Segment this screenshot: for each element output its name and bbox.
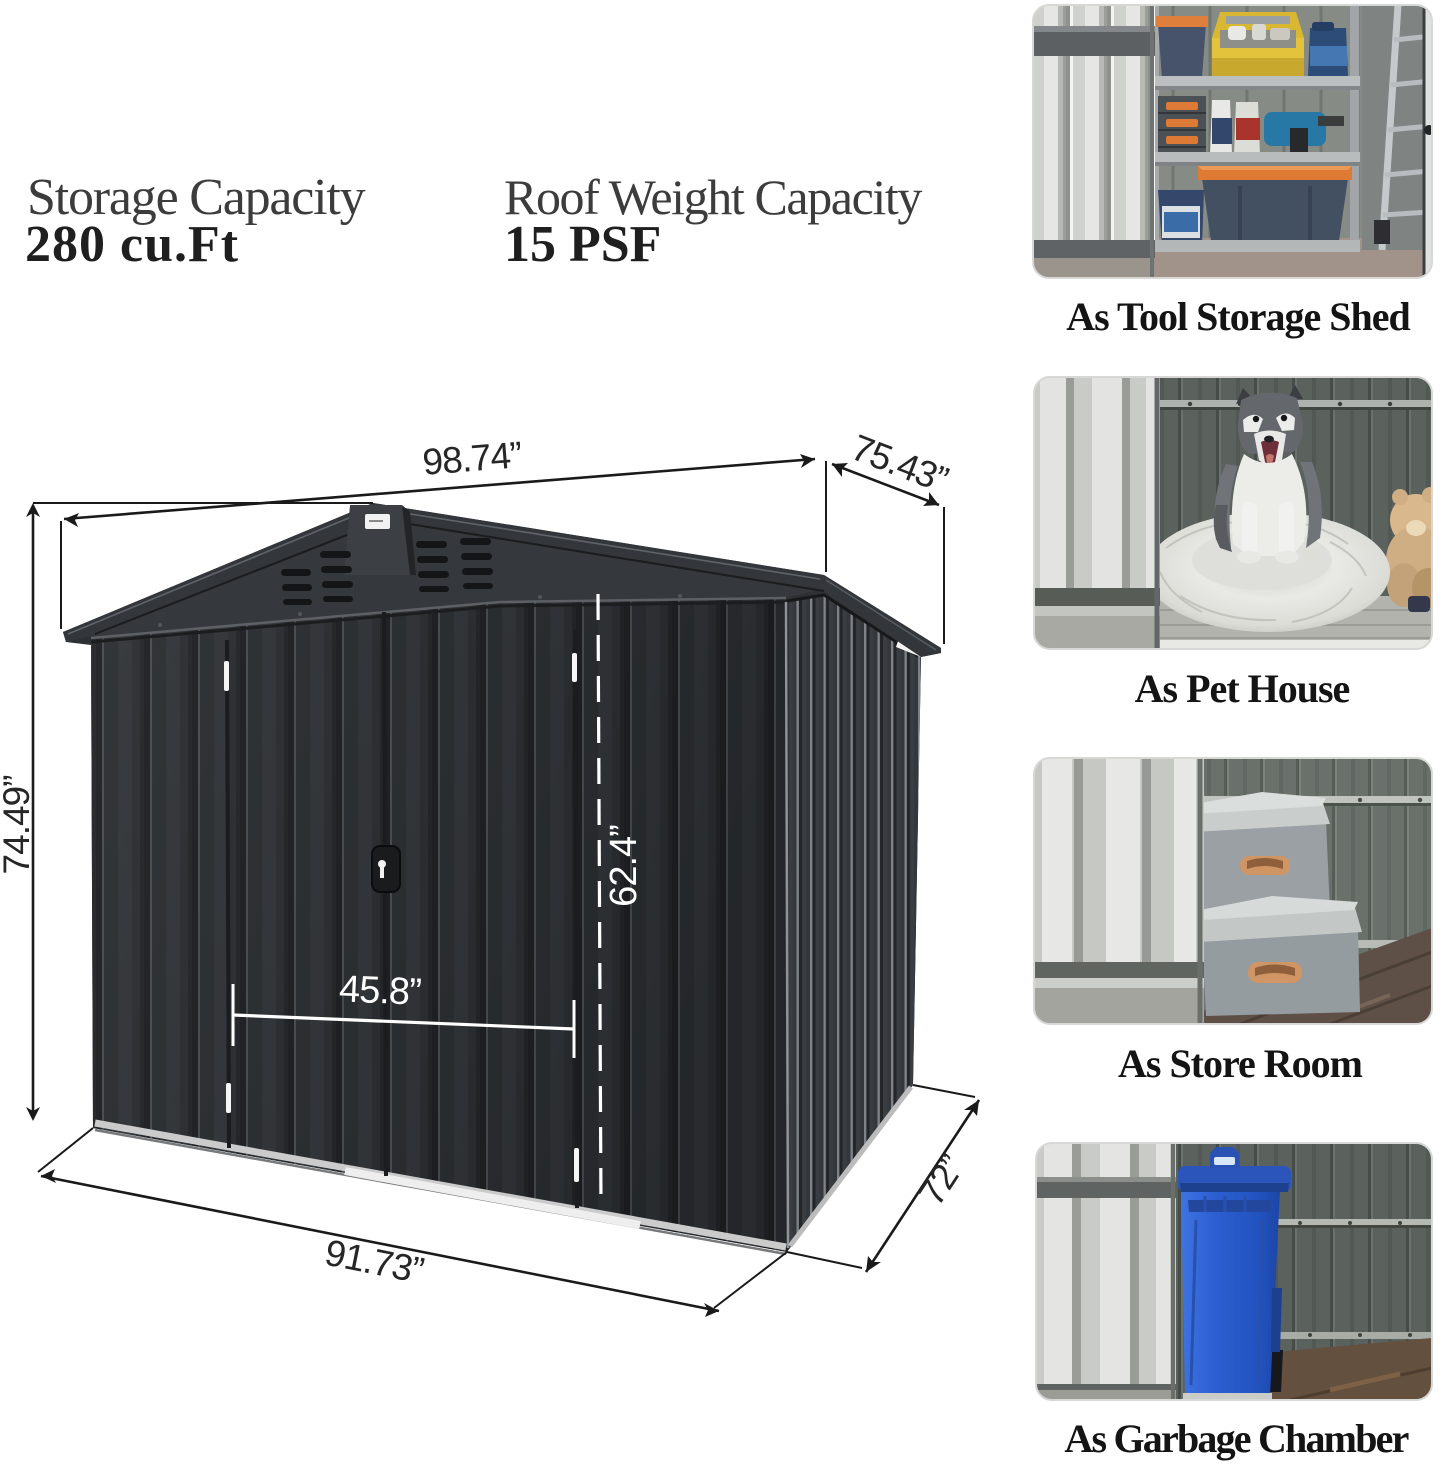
svg-text:98.74”: 98.74”	[421, 434, 523, 483]
svg-text:62.4”: 62.4”	[603, 825, 645, 907]
svg-text:91.73”: 91.73”	[322, 1232, 427, 1292]
svg-text:As Pet House: As Pet House	[1135, 666, 1350, 711]
svg-text:15 PSF: 15 PSF	[504, 216, 661, 273]
svg-text:As Tool Storage Shed: As Tool Storage Shed	[1066, 294, 1410, 339]
svg-text:72”: 72”	[910, 1148, 972, 1213]
svg-text:280 cu.Ft: 280 cu.Ft	[25, 216, 239, 273]
svg-text:As Garbage Chamber: As Garbage Chamber	[1064, 1416, 1408, 1461]
svg-text:As Store Room: As Store Room	[1118, 1041, 1363, 1086]
svg-text:45.8”: 45.8”	[338, 968, 422, 1014]
svg-text:74.49”: 74.49”	[0, 776, 37, 875]
